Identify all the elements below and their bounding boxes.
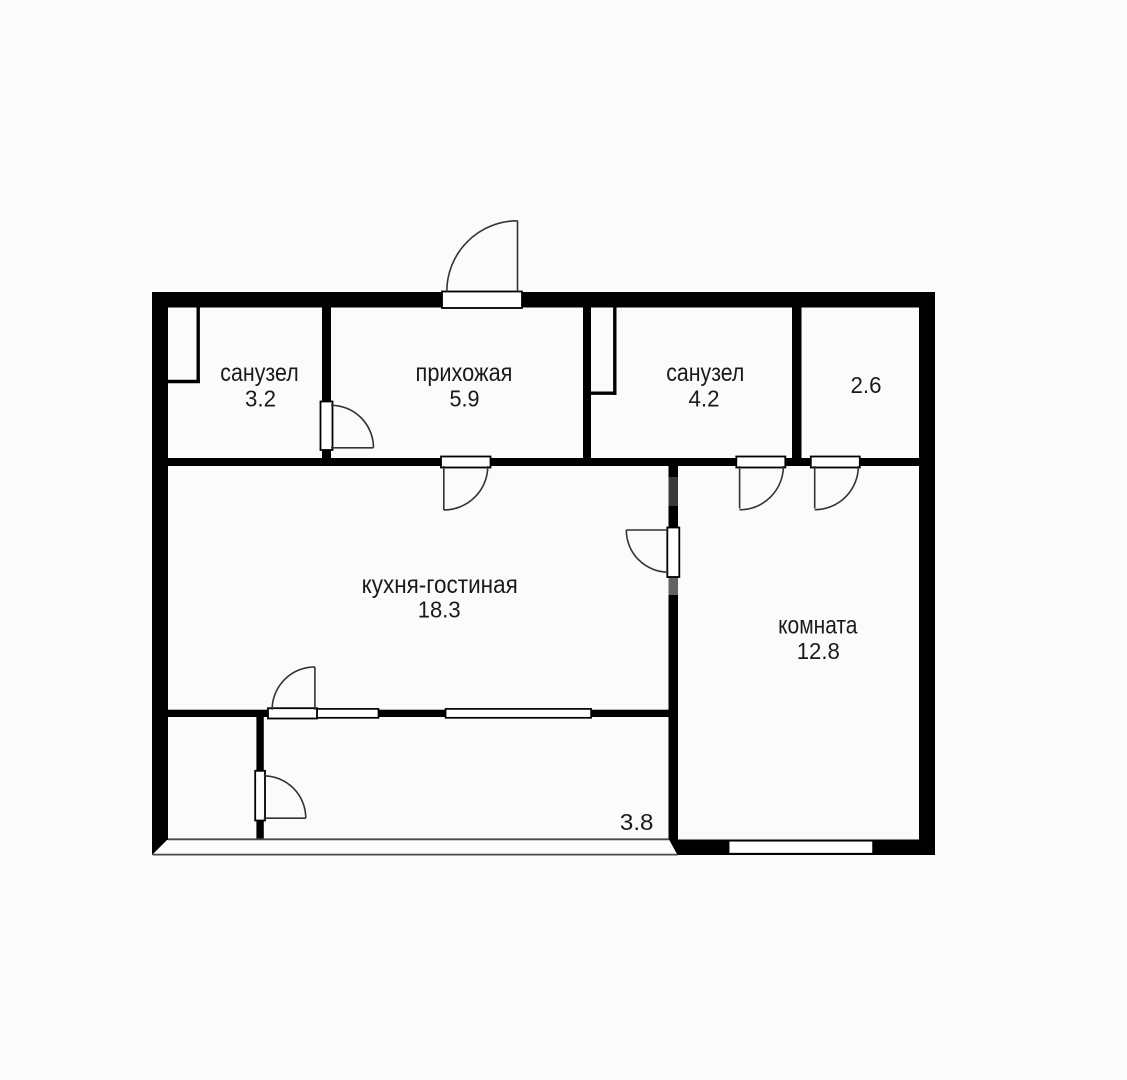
svg-text:кухня-гостиная: кухня-гостиная (362, 571, 518, 599)
svg-text:5.9: 5.9 (450, 386, 480, 412)
svg-text:12.8: 12.8 (797, 638, 840, 664)
svg-text:санузел: санузел (220, 359, 298, 387)
svg-text:санузел: санузел (666, 359, 744, 387)
svg-text:3.2: 3.2 (245, 386, 276, 412)
svg-text:прихожая: прихожая (416, 359, 513, 387)
svg-text:3.8: 3.8 (620, 809, 654, 835)
svg-text:4.2: 4.2 (689, 386, 720, 412)
svg-text:2.6: 2.6 (851, 372, 882, 398)
svg-text:18.3: 18.3 (418, 597, 461, 623)
svg-text:комната: комната (778, 612, 857, 640)
